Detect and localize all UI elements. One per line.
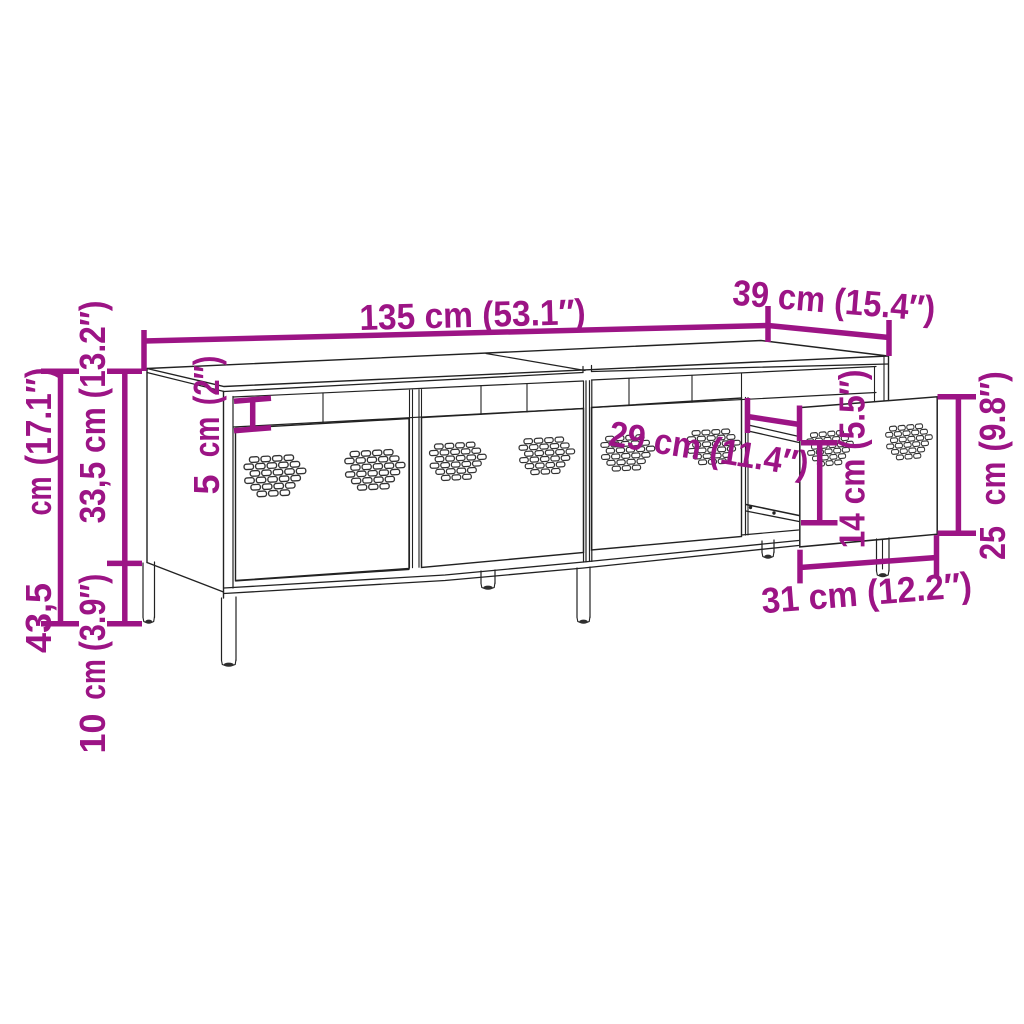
- svg-text:135 cm (53.1″): 135 cm (53.1″): [359, 293, 586, 338]
- svg-text:43,5: 43,5: [18, 583, 59, 653]
- svg-text:cm: cm: [974, 462, 1014, 506]
- svg-text:(9.8″): (9.8″): [973, 371, 1013, 451]
- svg-text:(3.9″): (3.9″): [74, 574, 114, 652]
- svg-text:(2″): (2″): [186, 356, 227, 406]
- svg-text:10: 10: [72, 713, 113, 753]
- svg-text:5: 5: [186, 474, 227, 494]
- svg-text:cm: cm: [18, 476, 59, 515]
- svg-text:cm: cm: [187, 417, 227, 458]
- svg-text:25: 25: [974, 526, 1014, 560]
- svg-text:33,5 cm (13.2″): 33,5 cm (13.2″): [73, 301, 113, 524]
- svg-text:cm: cm: [73, 659, 113, 700]
- svg-text:(17.1″): (17.1″): [19, 368, 59, 466]
- svg-text:14 cm (5.5″): 14 cm (5.5″): [833, 370, 873, 549]
